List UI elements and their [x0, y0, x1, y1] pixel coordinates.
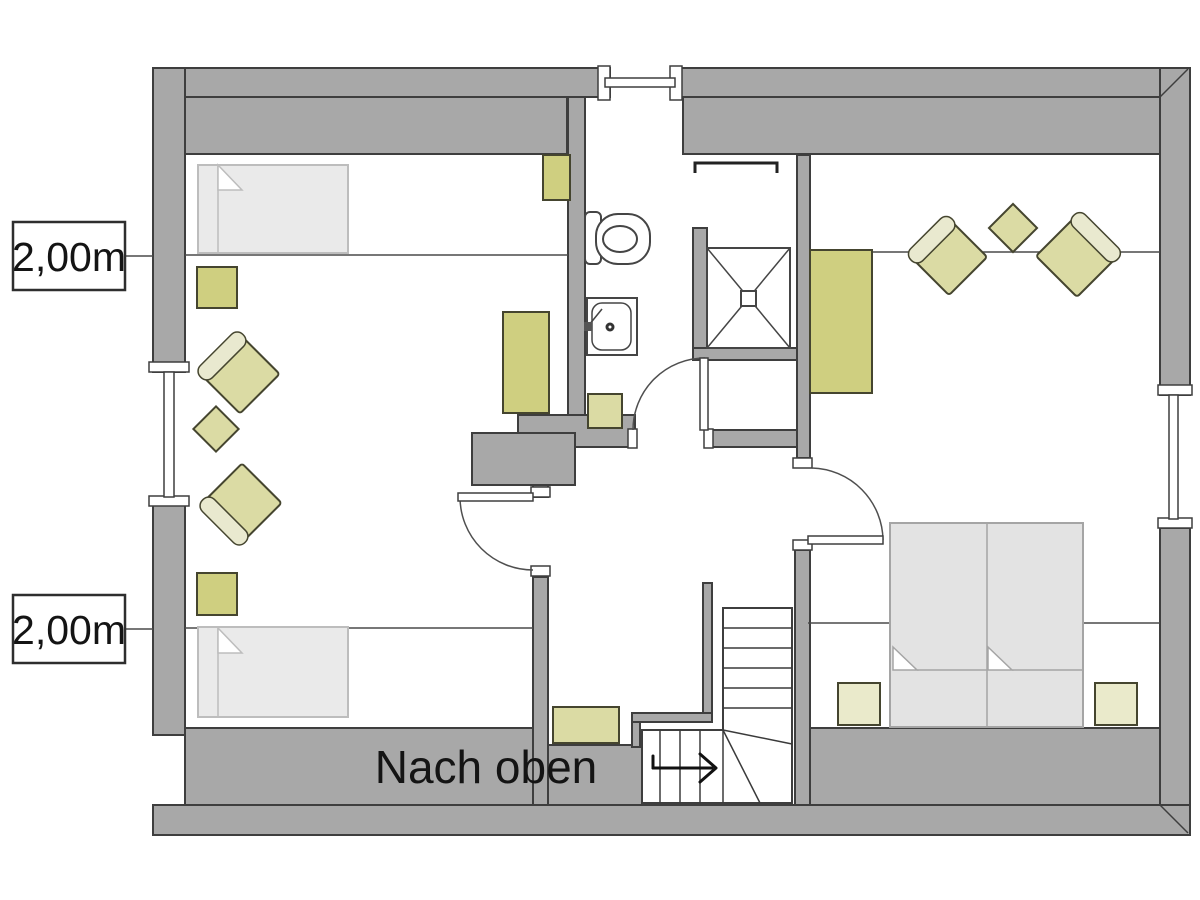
nightstand-icon: [197, 267, 237, 308]
shower-icon: [707, 248, 790, 348]
armchair-icon: [905, 213, 988, 296]
window-bathroom: [605, 78, 675, 87]
window-left: [164, 372, 174, 497]
door-leaf-bathroom: [700, 358, 708, 430]
floorplan-image: 2,00m 2,00m Nach oben: [0, 0, 1200, 900]
bathroom-group: [584, 163, 790, 428]
towel-rail-icon: [695, 163, 777, 173]
wall-bathroom-left: [568, 97, 585, 437]
nightstand-icon: [838, 683, 880, 725]
staircase-outline: [642, 608, 792, 803]
door-leaf-right-room: [808, 536, 883, 544]
side-table-icon: [193, 406, 238, 451]
wall-bottom-outer: [153, 805, 1190, 835]
double-bed-icon: [890, 523, 1083, 727]
door-leaf-left-room: [458, 493, 533, 501]
wall-left-upper: [153, 68, 185, 372]
door-jamb: [531, 487, 550, 497]
washbasin-icon: [584, 298, 637, 355]
wall-top-left-inner: [185, 97, 567, 154]
door-arc-left-room: [460, 497, 533, 570]
door-jamb: [531, 566, 550, 576]
single-bed-bottom-icon: [198, 627, 348, 717]
stairs-group: Nach oben: [375, 608, 792, 803]
height-label-top: 2,00m: [12, 234, 126, 280]
hall-shelf-icon: [553, 707, 619, 743]
window-cap: [1158, 385, 1192, 395]
wall-shower-left: [693, 228, 707, 360]
wall-bathroom-right: [797, 155, 810, 458]
toilet-icon: [585, 212, 650, 264]
door-jamb: [704, 429, 713, 448]
wall-bathroom-south-right: [705, 430, 810, 447]
side-table-icon: [989, 204, 1037, 252]
door-arc-right-room: [812, 468, 883, 540]
door-jamb: [793, 458, 812, 468]
chimney-block: [472, 433, 575, 485]
right-room-furniture: [810, 204, 1137, 727]
nightstand-icon: [1095, 683, 1137, 725]
window-right: [1169, 395, 1178, 519]
shelf-icon: [543, 155, 570, 200]
window-cap: [149, 362, 189, 372]
wall-top-left-outer: [153, 68, 610, 97]
stairs-label: Nach oben: [375, 741, 598, 793]
height-label-bottom: 2,00m: [12, 607, 126, 653]
bath-cabinet-icon: [588, 394, 622, 428]
wall-bottom-inner-right: [810, 728, 1160, 805]
armchair-icon: [1035, 209, 1124, 298]
nightstand-icon: [197, 573, 237, 615]
floorplan-page: 2,00m 2,00m Nach oben: [0, 0, 1200, 900]
wall-right-upper: [1160, 68, 1190, 395]
wall-right-of-stairs: [795, 550, 810, 805]
single-bed-top-icon: [198, 165, 348, 253]
stair-balustrade-vertical: [703, 583, 712, 722]
door-arc-bathroom: [633, 358, 705, 430]
armchair-icon: [197, 462, 283, 548]
wall-left-lower: [153, 497, 185, 735]
wall-top-right-inner: [683, 97, 1160, 154]
wall-top-right-outer: [672, 68, 1190, 97]
armchair-icon: [195, 329, 281, 415]
wall-right-lower: [1160, 528, 1190, 835]
sideboard-icon: [810, 250, 872, 393]
door-jamb: [628, 429, 637, 448]
stair-balustrade-horizontal: [632, 713, 712, 722]
wardrobe-icon: [503, 312, 549, 413]
stair-balustrade-end: [632, 722, 640, 747]
